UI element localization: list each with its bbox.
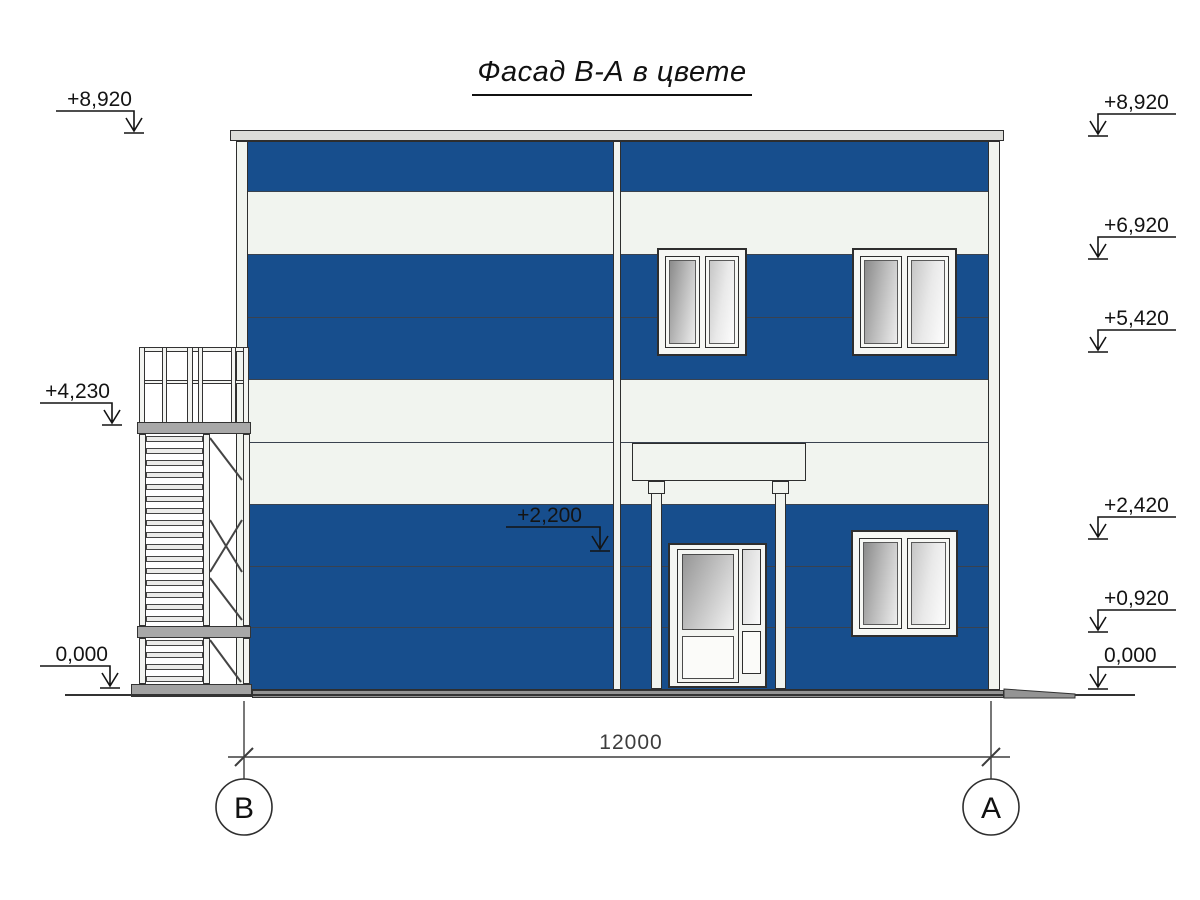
stair-tread: [146, 436, 203, 442]
railing-post: [162, 347, 167, 424]
stair-upper-landing: [137, 422, 251, 434]
stair-foundation: [131, 684, 252, 697]
right-pilaster: [988, 141, 1000, 690]
elevation-label: +8,920: [1104, 91, 1169, 115]
elevation-label: +8,920: [38, 88, 132, 112]
stair-tread: [146, 556, 203, 562]
window-glass: [709, 260, 736, 344]
door-glazing: [682, 554, 734, 630]
window-upper-left: [657, 248, 747, 356]
railing-post: [139, 347, 145, 424]
axis-bubble-v: [216, 779, 272, 835]
stair-stringer: [139, 434, 146, 626]
window-lower-right: [851, 530, 958, 637]
elevation-marker-arrow: [1088, 517, 1176, 539]
stair-tread: [146, 448, 203, 454]
facade-drawing: Фасад В-А в цвете: [0, 0, 1200, 900]
elevation-label: +4,230: [16, 380, 110, 404]
window-glass: [863, 542, 898, 625]
window-sash: [860, 256, 902, 348]
window-glass: [911, 260, 945, 344]
window-sash: [907, 256, 949, 348]
elevation-label: 0,000: [1104, 644, 1157, 668]
elevation-marker-arrow: [40, 666, 120, 688]
axis-letter-a: А: [981, 792, 1001, 825]
stair-tread: [146, 592, 203, 598]
elevation-marker-arrow: [56, 111, 144, 133]
elevation-label: +5,420: [1104, 307, 1169, 331]
entrance-door: [668, 543, 767, 688]
axis-bubble-a: [963, 779, 1019, 835]
canopy-post: [775, 493, 786, 689]
window-glass: [669, 260, 696, 344]
stair-tread: [146, 568, 203, 574]
elevation-marker-arrow: [1088, 237, 1176, 259]
stair-stringer: [203, 638, 210, 684]
elevation-marker-arrow: [40, 403, 122, 425]
railing-post: [231, 347, 236, 424]
stair-lower-landing: [137, 626, 251, 638]
pavement-ramp: [1004, 689, 1075, 698]
axis-letter-v: В: [234, 792, 254, 825]
dimension-value: 12000: [561, 731, 701, 755]
stair-tread: [146, 484, 203, 490]
elevation-marker-arrow: [1088, 114, 1176, 136]
stair-tread: [146, 544, 203, 550]
window-sash: [859, 538, 902, 629]
elevation-label: +6,920: [1104, 214, 1169, 238]
stair-tread: [146, 472, 203, 478]
window-upper-right: [852, 248, 957, 356]
window-glass: [911, 542, 946, 625]
elevation-label: +2,200: [506, 504, 582, 528]
stair-tread: [146, 640, 203, 646]
door-sidelight-bottom: [742, 631, 761, 674]
entrance-canopy: [632, 443, 806, 481]
elevation-label: +0,920: [1104, 587, 1169, 611]
truss-chord: [243, 434, 250, 626]
truss-chord: [243, 638, 250, 684]
stair-tread: [146, 508, 203, 514]
stair-tread: [146, 532, 203, 538]
window-sash: [665, 256, 700, 348]
stair-tread: [146, 580, 203, 586]
elevation-marker-arrow: [1088, 330, 1176, 352]
window-glass: [864, 260, 898, 344]
railing-post: [243, 347, 249, 424]
door-sidelight-top: [742, 549, 761, 625]
parapet-cap: [230, 130, 1004, 141]
stair-tread: [146, 616, 203, 622]
stair-tread: [146, 664, 203, 670]
stair-tread: [146, 676, 203, 682]
canopy-post: [651, 493, 662, 689]
door-bottom-panel: [682, 636, 734, 679]
stair-stringer: [139, 638, 146, 684]
railing-post: [187, 347, 193, 424]
window-sash: [705, 256, 740, 348]
railing-post: [198, 347, 203, 424]
drawing-title: Фасад В-А в цвете: [472, 56, 752, 96]
door-leaf: [677, 549, 739, 683]
elevation-marker-arrow: [1088, 667, 1176, 689]
stair-tread: [146, 652, 203, 658]
central-panel-joint: [613, 141, 621, 690]
pavement: [252, 690, 1004, 698]
elevation-label: 0,000: [14, 643, 108, 667]
stair-tread: [146, 604, 203, 610]
window-sash: [907, 538, 950, 629]
stair-tread: [146, 460, 203, 466]
elevation-marker-arrow: [1088, 610, 1176, 632]
elevation-label: +2,420: [1104, 494, 1169, 518]
stair-stringer: [203, 434, 210, 626]
stair-tread: [146, 520, 203, 526]
stair-tread: [146, 496, 203, 502]
